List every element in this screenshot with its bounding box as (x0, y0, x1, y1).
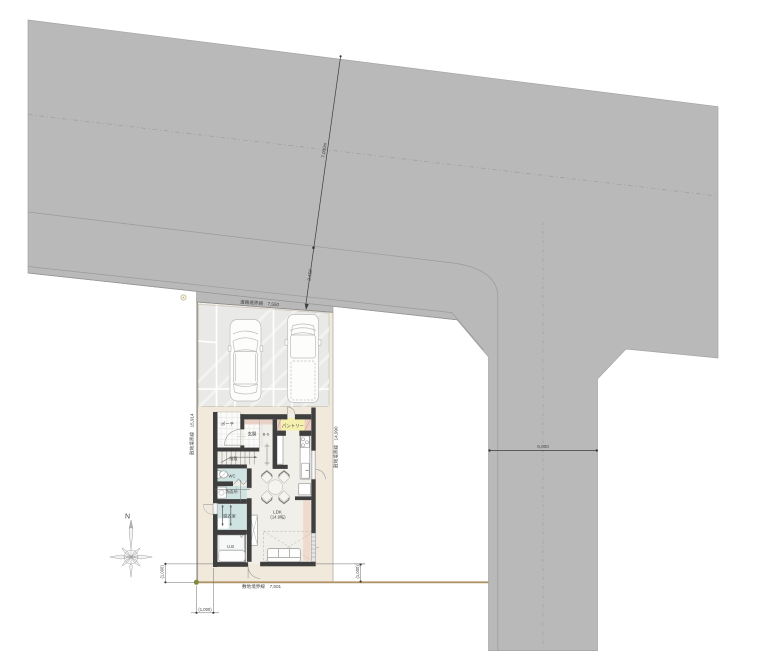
svg-text:脱衣室: 脱衣室 (223, 513, 236, 520)
svg-text:洗面所: 洗面所 (225, 488, 238, 495)
svg-text:敷地境界線 14,990: 敷地境界線 14,990 (333, 426, 340, 468)
svg-text:(1,000): (1,000) (198, 607, 212, 612)
svg-text:敷地境界線 7,501: 敷地境界線 7,501 (242, 583, 282, 590)
svg-text:パントリー: パントリー (282, 423, 304, 428)
svg-text:敷地境界線 15,914: 敷地境界線 15,914 (189, 413, 196, 455)
svg-text:(1,000): (1,000) (160, 565, 165, 579)
svg-text:WC: WC (229, 474, 236, 479)
svg-text:(14.9帖): (14.9帖) (270, 513, 286, 520)
svg-text:6,000: 6,000 (537, 444, 549, 449)
svg-text:ポーチ: ポーチ (221, 421, 234, 427)
svg-text:U.B: U.B (227, 544, 234, 549)
svg-text:階段: 階段 (230, 455, 238, 461)
svg-text:(1,000): (1,000) (355, 565, 360, 579)
svg-text:B-S: B-S (263, 431, 270, 436)
svg-text:玄関: 玄関 (248, 431, 257, 438)
svg-text:N: N (125, 514, 130, 521)
